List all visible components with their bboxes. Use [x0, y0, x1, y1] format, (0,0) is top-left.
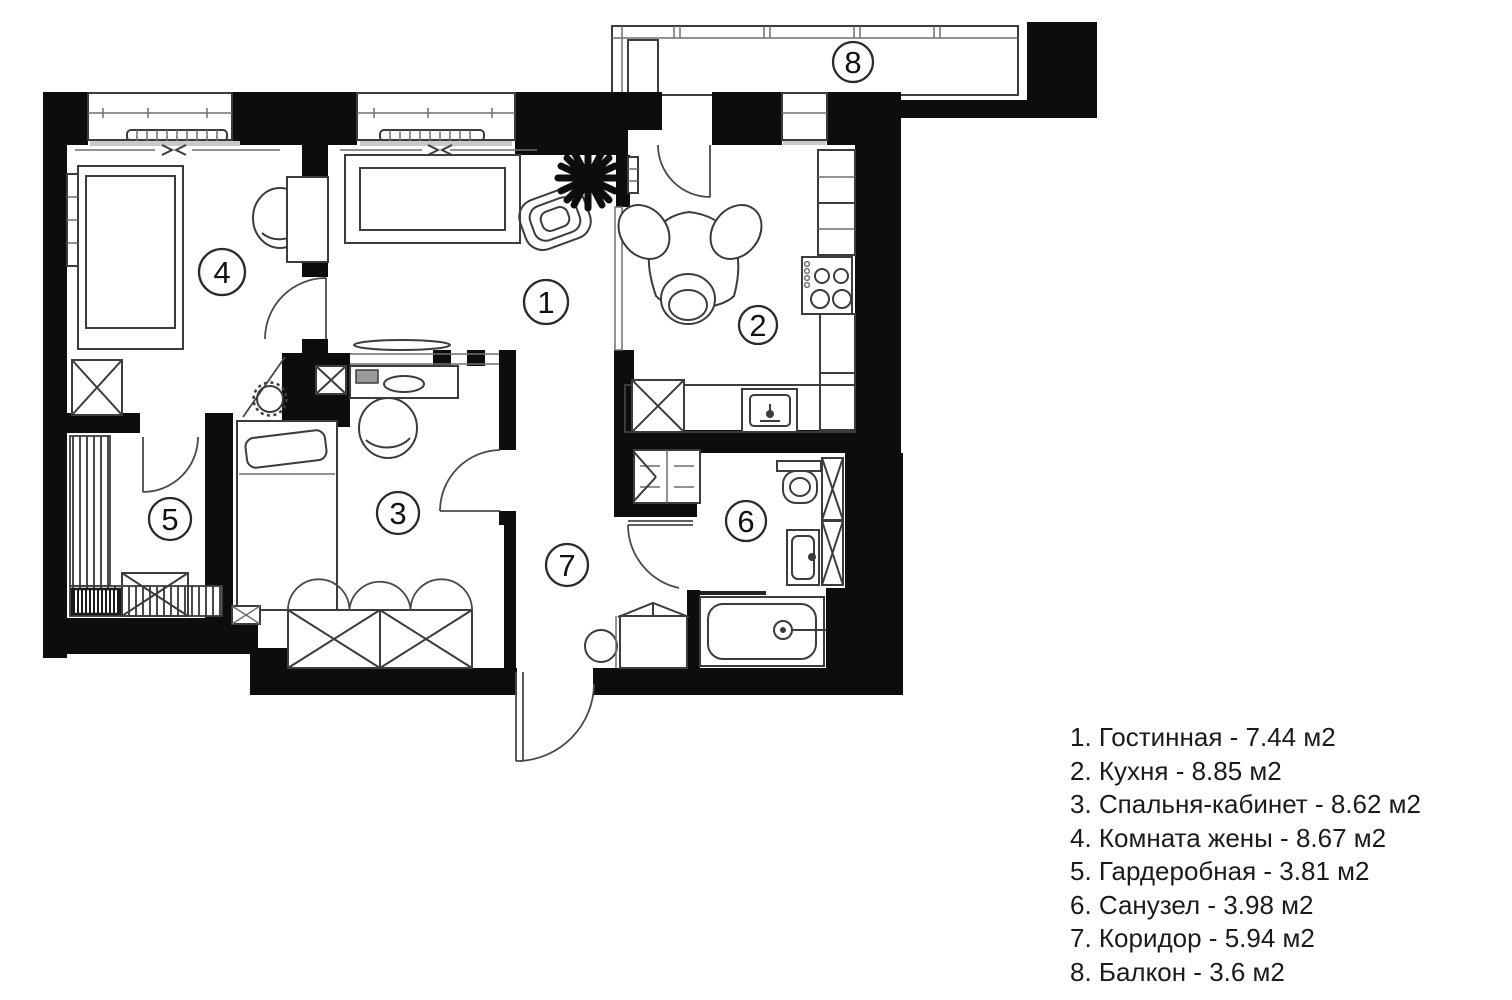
closet-drawer-unit [72, 589, 120, 614]
room-number-circle-2: 2 [739, 306, 777, 344]
wall-segment [499, 350, 516, 450]
legend-item: 2. Кухня - 8.85 м2 [1070, 755, 1421, 789]
legend-item: 8. Балкон - 3.6 м2 [1070, 956, 1421, 990]
bath-cabinet [634, 450, 700, 503]
wall-segment [43, 92, 88, 145]
window-living [340, 93, 537, 155]
legend-item: 6. Санузел - 3.98 м2 [1070, 889, 1421, 923]
legend-item: 5. Гардеробная - 3.81 м2 [1070, 855, 1421, 889]
bath-cabinet-right-upper [822, 458, 843, 520]
bath-cabinet-right-lower [822, 521, 843, 585]
wall-segment [712, 92, 782, 145]
wall-segment [43, 92, 67, 658]
wall-segment [845, 453, 903, 588]
room-number-text: 3 [389, 496, 406, 531]
kitchen-sink [742, 389, 797, 432]
wall-segment [504, 525, 516, 668]
room-number-circle-1: 1 [524, 280, 568, 324]
side-cabinet-kitchen-wall [628, 157, 638, 193]
kitchen-tall-cabinets [818, 150, 855, 255]
wall-segment [1027, 22, 1097, 118]
wall-segment [593, 668, 693, 695]
bath-sink [787, 530, 819, 585]
floor-plan-page: 1 2 3 4 5 6 7 8 1. [0, 0, 1512, 1000]
room-number-circle-4: 4 [199, 249, 245, 295]
plant [558, 148, 618, 208]
room-legend: 1. Гостинная - 7.44 м2 2. Кухня - 8.85 м… [1070, 721, 1421, 989]
window-kitchen [782, 93, 827, 145]
wall-segment [855, 145, 901, 453]
tv [354, 340, 450, 350]
wall-segment [515, 92, 628, 155]
monitor [356, 370, 378, 383]
wall-segment [901, 100, 1027, 118]
wall-segment [693, 668, 903, 695]
wall-segment [827, 92, 901, 145]
room-number-circle-3: 3 [377, 492, 419, 534]
wardrobe-room4 [72, 360, 122, 415]
closet-rail-left [70, 436, 110, 586]
bathtub [700, 597, 826, 666]
legend-item: 1. Гостинная - 7.44 м2 [1070, 721, 1421, 755]
wall-segment [614, 503, 697, 517]
desk-room4 [287, 177, 328, 262]
corridor-cabinet [616, 603, 689, 668]
fridge [632, 380, 684, 432]
room-number-text: 2 [749, 308, 766, 343]
stove [802, 257, 852, 314]
bed-room4 [78, 166, 183, 349]
wall-segment [427, 668, 517, 695]
room-number-circle-8: 8 [833, 42, 873, 82]
wall-segment [499, 511, 516, 525]
duct-shaft [316, 366, 346, 394]
wall-segment [43, 618, 258, 654]
office-chair [359, 398, 417, 458]
room-number-text: 5 [161, 502, 178, 537]
kitchen-counter-right [820, 314, 855, 430]
corridor-stool [585, 630, 617, 662]
legend-item: 7. Коридор - 5.94 м2 [1070, 922, 1421, 956]
bed-foot-box [232, 606, 260, 624]
legend-item: 3. Спальня-кабинет - 8.62 м2 [1070, 788, 1421, 822]
kitchen-chair-bottom [661, 274, 715, 324]
wall-segment [232, 92, 357, 145]
room-number-text: 4 [213, 255, 230, 290]
room-number-circle-5: 5 [149, 498, 191, 540]
room-number-circle-7: 7 [546, 544, 588, 586]
room-number-text: 6 [737, 504, 754, 539]
room-number-circle-6: 6 [726, 501, 766, 541]
room-number-text: 1 [537, 285, 554, 320]
room-number-text: 7 [558, 548, 575, 583]
wall-segment [687, 590, 700, 668]
room-number-text: 8 [844, 45, 861, 80]
desk-lamp [384, 376, 424, 392]
bed-room3 [237, 421, 337, 610]
wall-segment [628, 92, 662, 130]
legend-item: 4. Комната жены - 8.67 м2 [1070, 822, 1421, 856]
